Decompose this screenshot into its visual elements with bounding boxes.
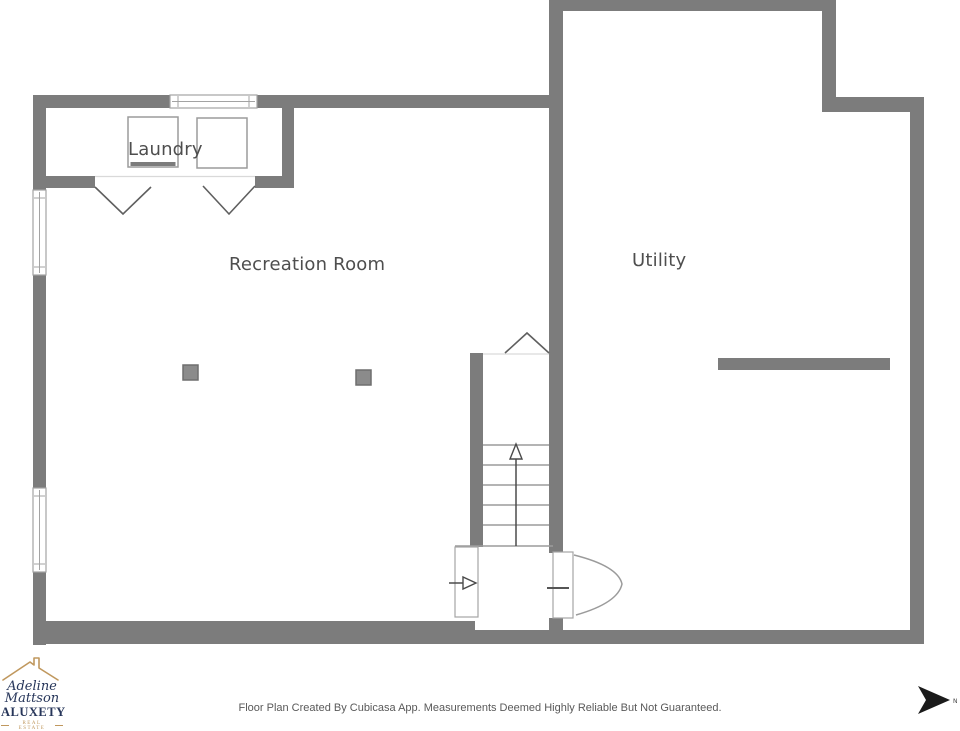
room-label-utility: Utility: [632, 250, 686, 271]
wall-step-horizontal: [822, 97, 924, 112]
wall-stairwell-left: [470, 353, 483, 547]
support-posts: [183, 365, 371, 385]
window-left-lower: [33, 488, 46, 572]
brokerage-logo: Adeline Mattson ALUXETY REAL ESTATE: [1, 654, 63, 731]
utility-door-leaf: [553, 552, 573, 618]
wall-utility-interior-segment: [718, 358, 890, 370]
wall-bottom-exterior: [33, 630, 924, 644]
wall-bottom-recreation-thick: [33, 621, 475, 631]
north-arrow-icon: N: [912, 684, 960, 718]
logo-agent-last-name: Mattson: [1, 692, 63, 705]
washer-door-strip: [131, 162, 176, 166]
wall-laundry-bottom-left: [33, 176, 95, 188]
window-laundry-top: [170, 95, 257, 108]
utility-door-swing-arc: [574, 555, 622, 615]
footer-disclaimer: Floor Plan Created By Cubicasa App. Meas…: [0, 702, 960, 714]
laundry-bifold-door-left-icon: [95, 187, 151, 214]
support-post-icon: [356, 370, 371, 385]
room-label-recreation-room: Recreation Room: [229, 254, 385, 275]
window-left-upper: [33, 190, 46, 275]
logo-roof-icon: [1, 654, 63, 681]
stair-top-door-icon: [505, 333, 549, 353]
wall-right-exterior: [910, 97, 924, 644]
stair-up-arrow-icon: [510, 444, 522, 459]
logo-tagline-text: REAL ESTATE: [12, 721, 53, 731]
wall-utility-top: [549, 0, 835, 11]
floor-plan-page: Laundry Recreation Room Utility Floor Pl…: [0, 0, 960, 720]
dryer-icon: [197, 118, 247, 168]
logo-tagline-dash: [1, 725, 9, 726]
north-arrow-label: N: [953, 698, 958, 705]
wall-divider-recreation-utility: [549, 0, 563, 553]
wall-step-vertical: [822, 0, 836, 112]
floor-plan-drawing: [0, 0, 960, 650]
wall-laundry-right: [282, 95, 294, 188]
wall-laundry-bottom-right: [255, 176, 294, 188]
room-label-laundry: Laundry: [128, 139, 203, 160]
logo-tagline: REAL ESTATE: [1, 721, 63, 731]
laundry-bifold-door-right-icon: [203, 186, 255, 214]
support-post-icon: [183, 365, 198, 380]
logo-tagline-dash: [55, 725, 63, 726]
logo-brand-name: ALUXETY: [1, 706, 63, 719]
